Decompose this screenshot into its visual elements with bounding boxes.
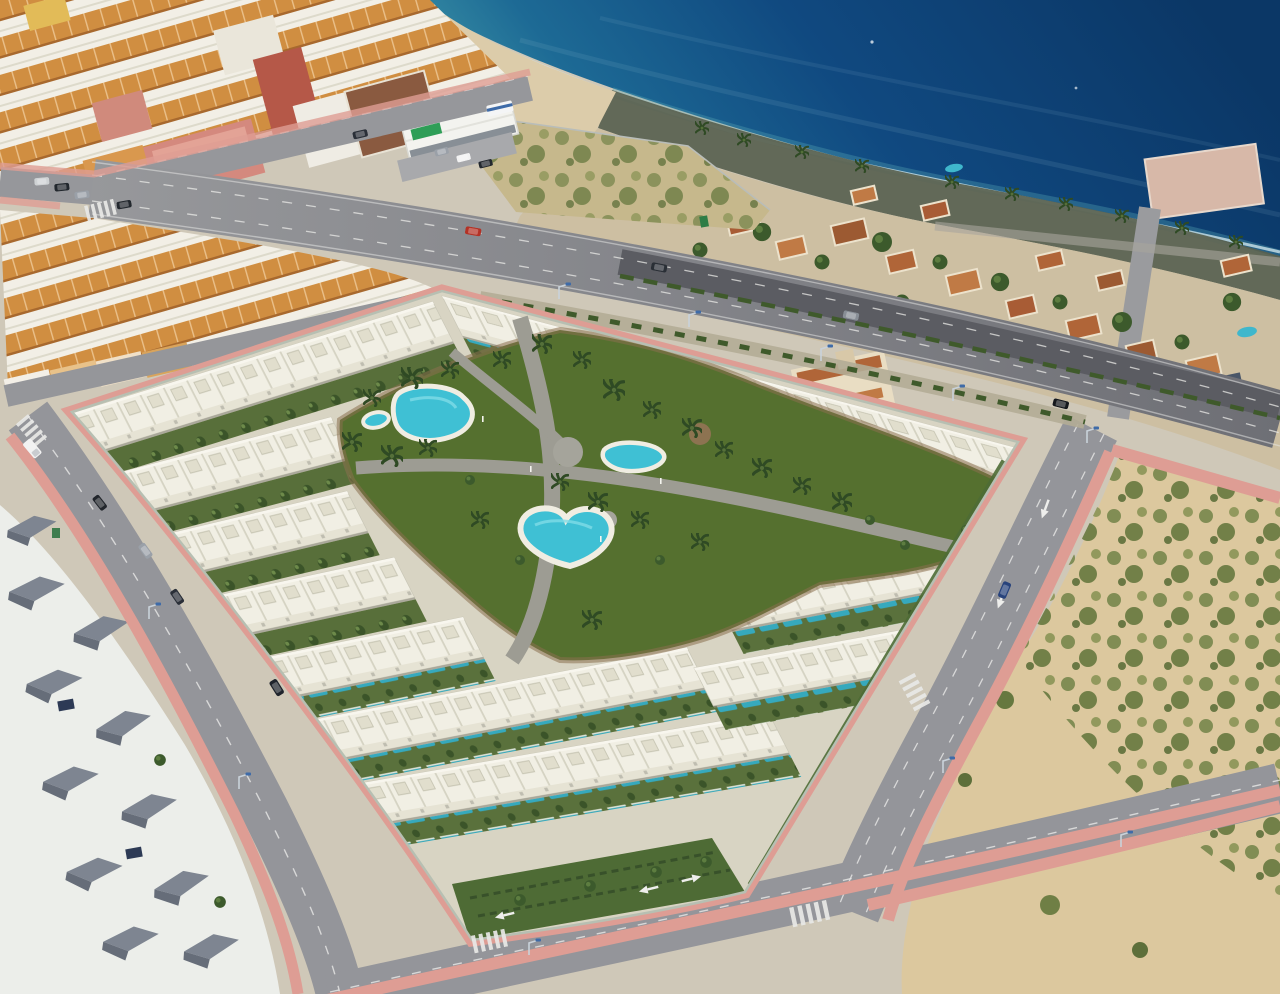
boat (870, 40, 873, 43)
scrub-bush (1040, 895, 1060, 915)
scrub-bush (958, 773, 972, 787)
pool-large-kidney (393, 386, 472, 440)
scrub-bush (1132, 942, 1148, 958)
car (54, 183, 70, 192)
utility-box-green (52, 528, 60, 538)
path-plaza (553, 437, 583, 467)
garden-tree (214, 896, 226, 908)
aerial-scene: Aerial view of a coastal town: a photore… (0, 0, 1280, 994)
car (34, 177, 50, 186)
boat (1075, 87, 1078, 90)
aerial-photo: Aerial view of a coastal town: a photore… (0, 0, 1280, 994)
garden-tree (154, 754, 166, 766)
pool-medium-kidney (603, 443, 665, 471)
